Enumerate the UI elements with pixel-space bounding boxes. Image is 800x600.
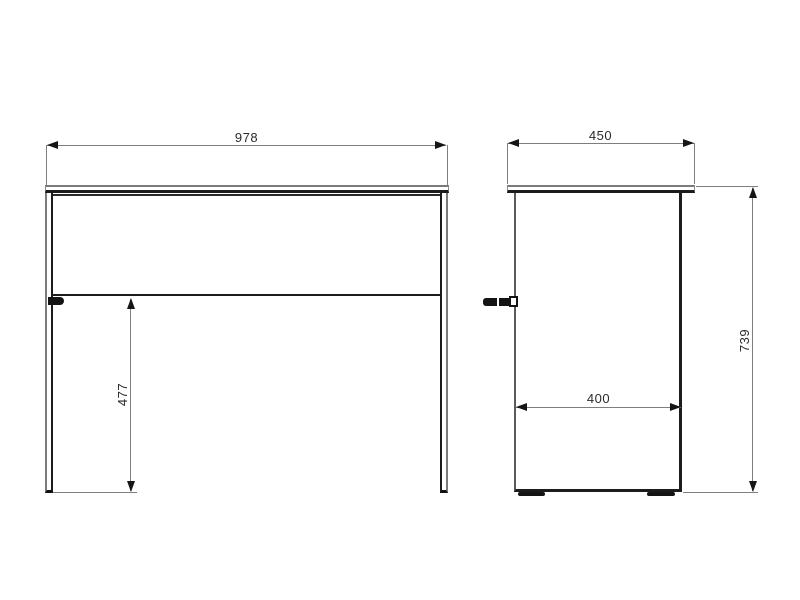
screw-notch <box>497 298 499 306</box>
glide-foot-left <box>518 492 545 496</box>
side-depth-extension-left <box>507 143 508 184</box>
side-panel <box>514 193 682 492</box>
arrow-right-icon <box>670 403 681 411</box>
arrow-down-icon <box>749 481 757 492</box>
arrow-left-icon <box>508 139 519 147</box>
arrow-up-icon <box>749 187 757 198</box>
side-depth-extension-right <box>694 143 695 184</box>
side-view: 450 400 739 <box>0 0 800 600</box>
side-depth-label: 450 <box>574 128 627 143</box>
screw-head-icon <box>509 296 518 307</box>
arrow-left-icon <box>516 403 527 411</box>
technical-drawing-canvas: 978 477 450 <box>0 0 800 600</box>
side-height-dimension-line <box>752 188 753 491</box>
side-depth-dimension-line <box>508 143 694 144</box>
side-desktop-slab <box>507 185 695 193</box>
side-inner-depth-dimension-line <box>516 407 681 408</box>
side-height-extension-bottom <box>683 492 758 493</box>
arrow-right-icon <box>683 139 694 147</box>
side-height-label: 739 <box>737 329 752 352</box>
side-inner-depth-label: 400 <box>572 391 625 406</box>
glide-foot-right <box>647 492 675 496</box>
